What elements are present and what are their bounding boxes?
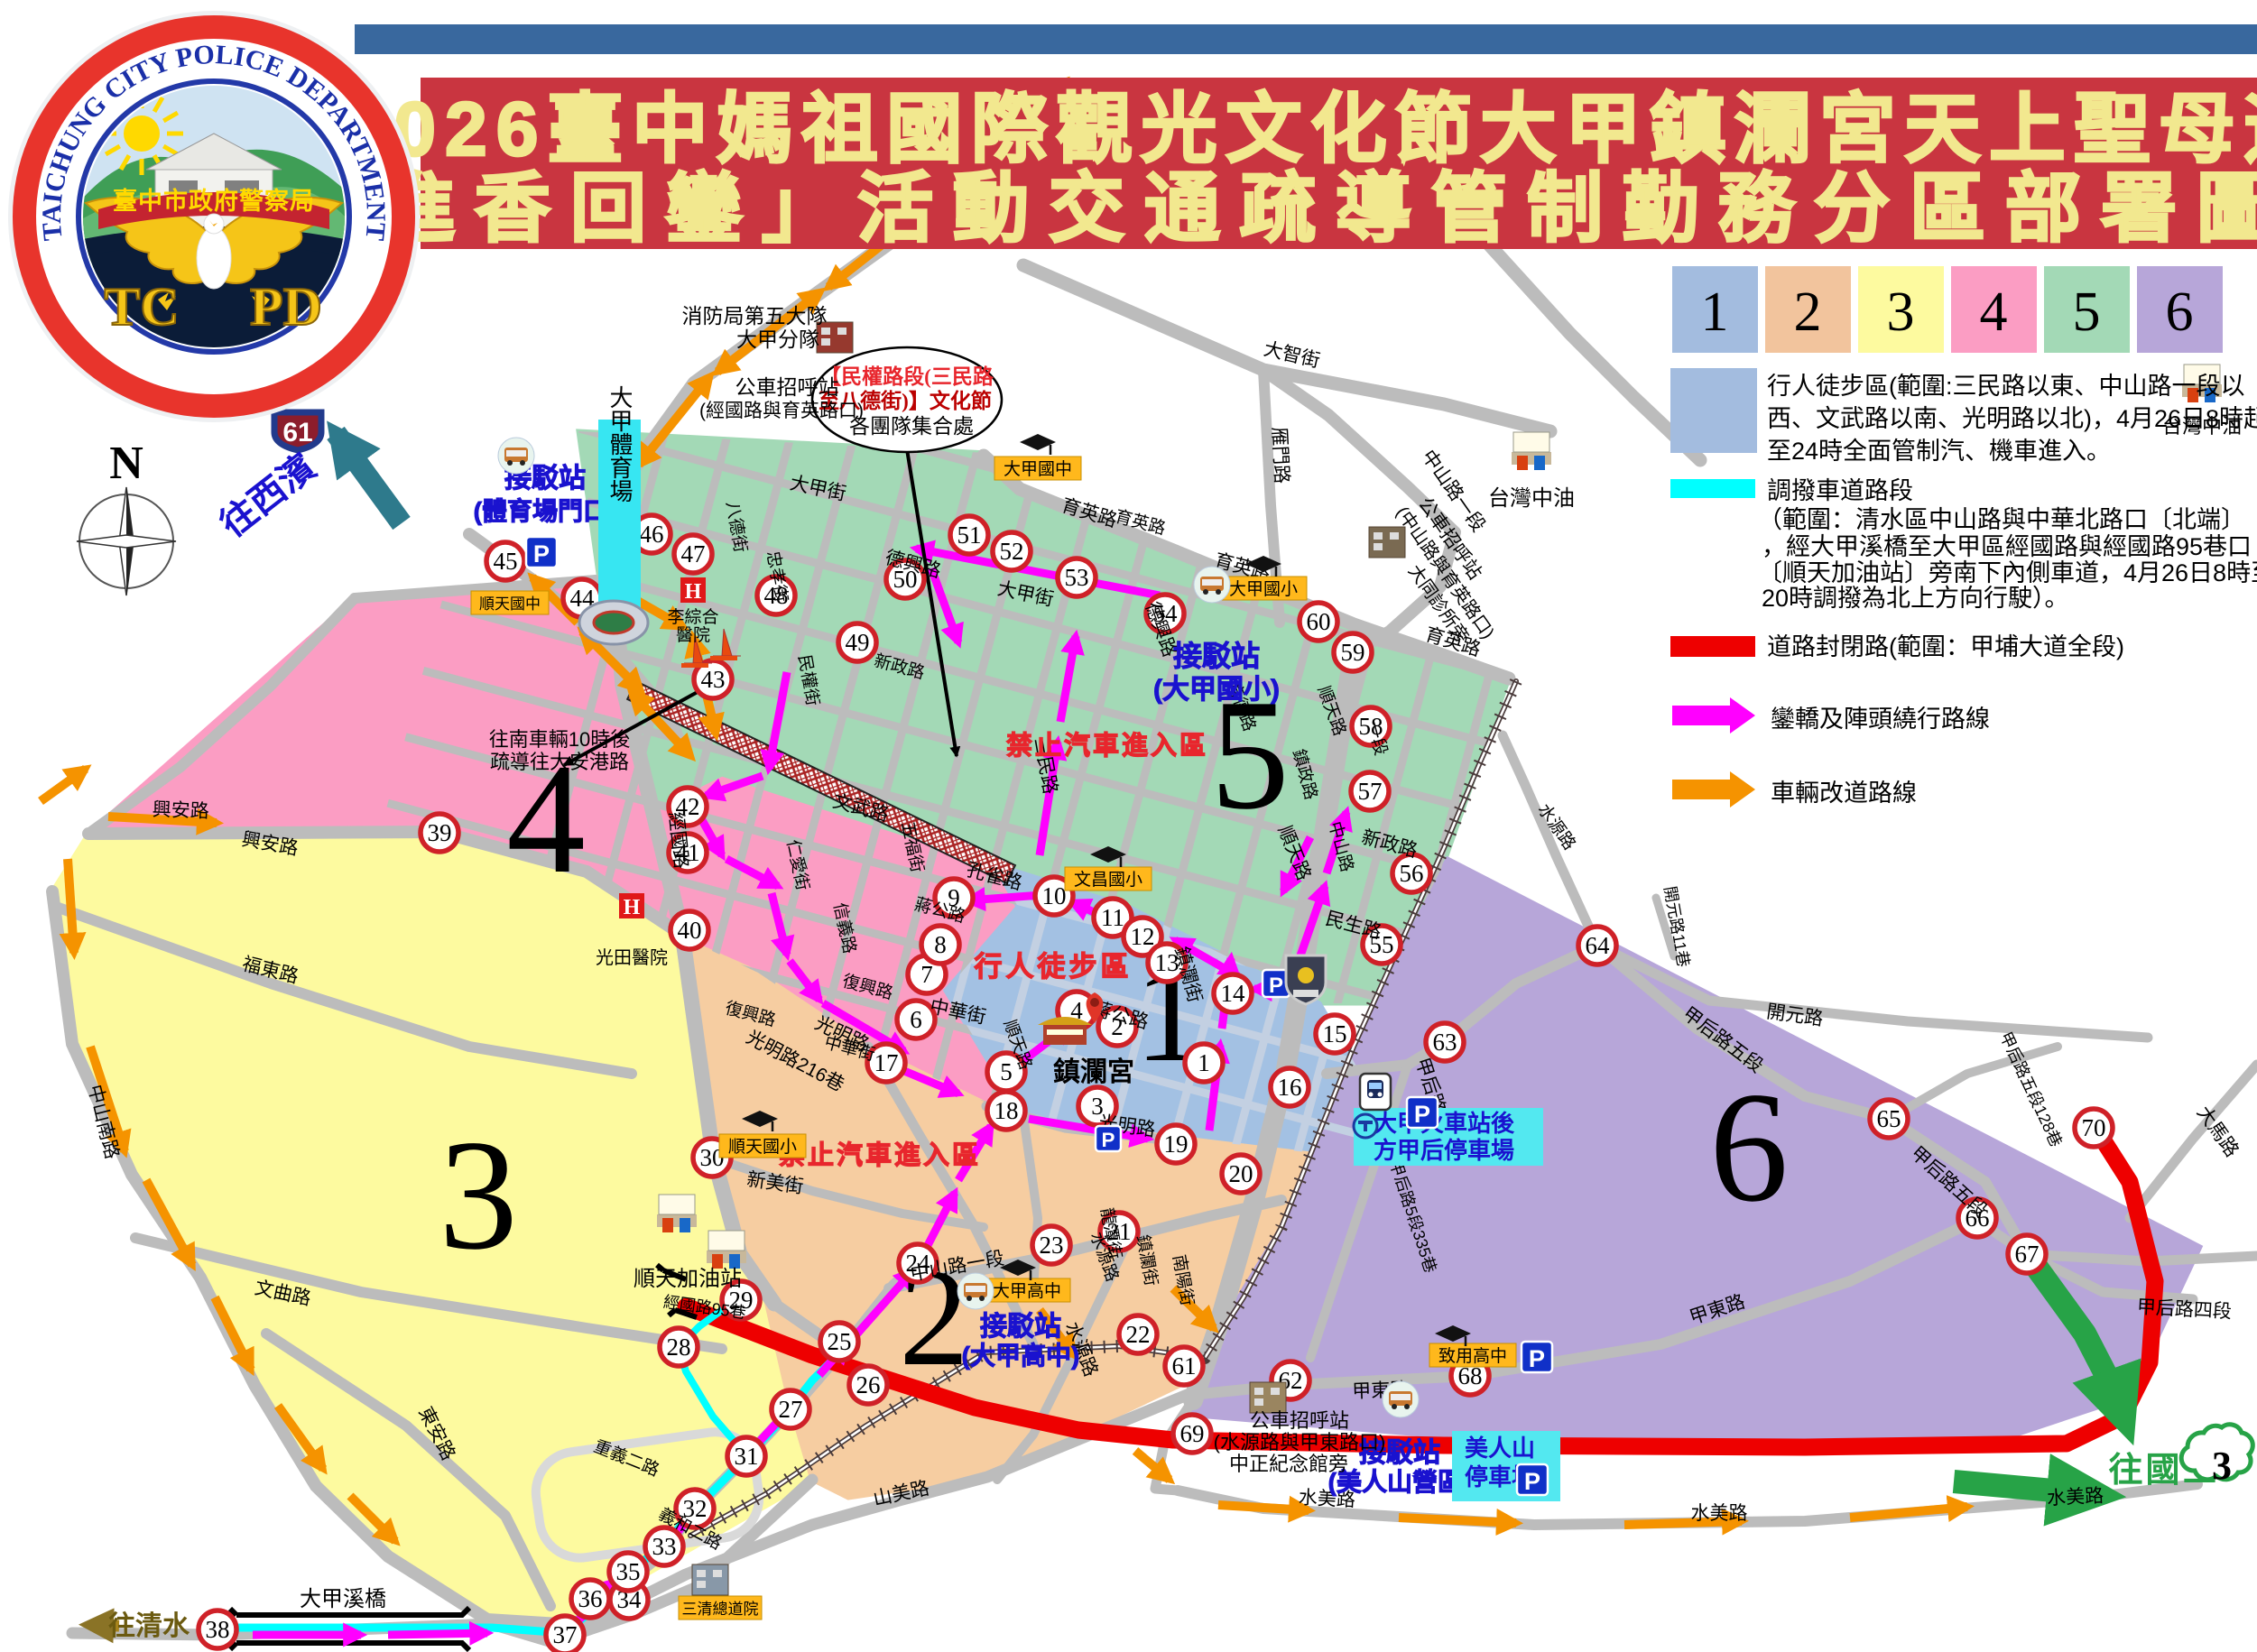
svg-text:方甲后停車場: 方甲后停車場 [1374,1137,1514,1164]
svg-text:45: 45 [494,548,518,575]
svg-text:大甲國小: 大甲國小 [1229,579,1298,599]
svg-text:中正紀念館旁: 中正紀念館旁 [1229,1453,1348,1475]
svg-text:往清水: 往清水 [108,1611,190,1641]
svg-text:行人徒步區: 行人徒步區 [974,951,1133,983]
svg-text:禁止汽車進入區: 禁止汽車進入區 [779,1140,981,1170]
svg-text:(美人山營區): (美人山營區) [1328,1468,1472,1496]
svg-text:(大甲國小): (大甲國小) [1153,675,1280,705]
svg-text:文昌國小: 文昌國小 [1074,870,1142,890]
svg-text:醫院: 醫院 [676,625,710,645]
svg-text:36: 36 [578,1585,603,1612]
svg-text:57: 57 [1358,778,1383,805]
svg-text:車輛改道路線: 車輛改道路線 [1771,780,1917,807]
svg-text:6: 6 [1709,1059,1789,1234]
svg-text:63: 63 [1433,1029,1457,1056]
svg-text:5: 5 [2073,281,2101,343]
svg-text:33: 33 [652,1533,677,1560]
svg-text:H: H [685,580,702,604]
svg-text:56: 56 [1400,860,1424,887]
svg-text:70: 70 [2082,1114,2106,1141]
svg-text:40: 40 [678,917,702,944]
svg-text:35: 35 [616,1558,641,1585]
svg-text:6: 6 [910,1006,922,1033]
svg-text:道路封閉路(範圍：甲埔大道全段): 道路封閉路(範圍：甲埔大道全段) [1767,633,2124,660]
svg-text:P: P [1524,1467,1540,1495]
svg-text:大甲分隊: 大甲分隊 [736,328,819,351]
svg-text:（範圍：清水區中山路與中華北路口〔北端〕: （範圍：清水區中山路與中華北路口〔北端〕 [1758,506,2245,533]
svg-text:2: 2 [1794,281,1822,343]
svg-text:三清總道院: 三清總道院 [682,1601,759,1618]
svg-text:H: H [624,896,641,919]
svg-text:水美路: 水美路 [2047,1485,2104,1509]
svg-text:，經大甲溪橋至大甲區經國路與經國路95巷口: ，經大甲溪橋至大甲區經國路與經國路95巷口 [1762,533,2252,560]
svg-text:〔順天加油站〕旁南下內側車道，4月26日8時至: 〔順天加油站〕旁南下內側車道，4月26日8時至 [1758,559,2257,586]
svg-text:臺中市政府警察局: 臺中市政府警察局 [113,187,315,215]
svg-text:15: 15 [1323,1020,1347,1047]
svg-text:順天國中: 順天國中 [479,595,541,613]
svg-text:公車招呼站: 公車招呼站 [735,375,839,399]
svg-text:調撥車道路段: 調撥車道路段 [1767,477,1913,504]
svg-text:8: 8 [934,931,947,958]
svg-text:49: 49 [846,629,870,656]
svg-text:雁門路: 雁門路 [1268,427,1291,485]
svg-text:P: P [1102,1129,1115,1151]
svg-text:順天加油站: 順天加油站 [634,1267,742,1291]
svg-text:37: 37 [553,1621,578,1648]
svg-text:各團隊集合處: 各團隊集合處 [849,415,974,438]
svg-text:69: 69 [1180,1420,1205,1447]
svg-text:61: 61 [1172,1352,1197,1380]
svg-text:TC: TC [104,277,179,337]
svg-text:P: P [1529,1344,1545,1372]
svg-text:疏導往大安港路: 疏導往大安港路 [490,751,629,773]
svg-text:消防局第五大隊: 消防局第五大隊 [682,304,828,328]
svg-text:52: 52 [1000,538,1024,565]
svg-text:27: 27 [779,1396,803,1423]
svg-text:10: 10 [1042,882,1067,909]
svg-text:往南車輛10時後: 往南車輛10時後 [489,728,630,751]
svg-text:西、文武路以南、光明路以北)，4月26日8時起: 西、文武路以南、光明路以北)，4月26日8時起 [1767,405,2257,432]
svg-text:(大甲高中): (大甲高中) [962,1342,1080,1370]
svg-text:接駁站: 接駁站 [1173,640,1260,672]
svg-text:25: 25 [828,1328,852,1355]
svg-text:PD: PD [250,277,322,337]
svg-text:鑾轎及陣頭繞行路線: 鑾轎及陣頭繞行路線 [1771,706,1990,733]
svg-text:39: 39 [428,819,452,846]
svg-text:(經國路與育英路口): (經國路與育英路口) [699,401,864,421]
svg-text:61: 61 [282,418,312,448]
svg-text:17: 17 [874,1049,899,1076]
svg-text:(水源路與甲東路口): (水源路與甲東路口) [1214,1431,1386,1454]
svg-text:光田醫院: 光田醫院 [596,947,668,968]
svg-text:20時調撥為北上方向行駛）。: 20時調撥為北上方向行駛）。 [1762,585,2069,612]
svg-text:20: 20 [1229,1160,1253,1187]
svg-text:53: 53 [1065,564,1089,591]
svg-text:P: P [533,540,550,568]
svg-text:N: N [109,438,143,489]
svg-text:7: 7 [920,961,933,988]
svg-text:李綜合: 李綜合 [667,607,718,627]
svg-text:14: 14 [1221,980,1246,1007]
svg-text:38: 38 [206,1616,230,1643]
svg-text:64: 64 [1586,932,1611,959]
svg-text:大甲溪橋: 大甲溪橋 [300,1587,386,1611]
svg-text:26: 26 [856,1371,881,1398]
svg-text:67: 67 [2015,1241,2040,1268]
svg-text:43: 43 [701,666,726,693]
svg-text:興安路: 興安路 [152,799,209,822]
svg-text:3: 3 [439,1107,518,1282]
svg-text:18: 18 [994,1097,1019,1124]
svg-text:致用高中: 致用高中 [1438,1346,1507,1366]
svg-text:28: 28 [667,1334,691,1361]
svg-text:接駁站: 接駁站 [980,1312,1061,1342]
svg-text:3: 3 [2212,1444,2232,1488]
svg-text:12: 12 [1131,923,1155,950]
svg-text:P: P [1414,1100,1430,1128]
svg-text:23: 23 [1040,1232,1064,1259]
svg-text:進香回鑾」活動交通疏導管制勤務分區部署圖: 進香回鑾」活動交通疏導管制勤務分區部署圖 [379,166,2257,251]
svg-text:大甲體育場: 大甲體育場 [606,385,634,503]
svg-text:【民權路段(三民路: 【民權路段(三民路 [820,365,994,388]
svg-text:4: 4 [1980,281,2008,343]
svg-text:大甲高中: 大甲高中 [993,1281,1061,1301]
svg-text:大甲火車站後: 大甲火車站後 [1374,1110,1515,1137]
svg-text:行人徒步區(範圍:三民路以東、中山路一段以: 行人徒步區(範圍:三民路以東、中山路一段以 [1767,373,2245,400]
svg-text:公車招呼站: 公車招呼站 [1250,1409,1349,1432]
svg-text:60: 60 [1307,608,1331,635]
svg-text:31: 31 [735,1443,759,1470]
svg-text:46: 46 [640,521,664,548]
svg-text:(體育場門口): (體育場門口) [474,496,617,525]
svg-text:台灣中油: 台灣中油 [1488,486,1575,511]
svg-text:P: P [1269,974,1283,998]
svg-text:大甲國中: 大甲國中 [1004,459,1072,479]
svg-text:順天國小: 順天國小 [728,1137,797,1157]
svg-text:美人山: 美人山 [1465,1435,1535,1462]
svg-text:51: 51 [957,521,982,549]
svg-text:16: 16 [1278,1074,1302,1101]
svg-text:5: 5 [1000,1058,1013,1085]
svg-text:鎮瀾宮: 鎮瀾宮 [1053,1057,1134,1087]
svg-text:11: 11 [1101,904,1124,931]
svg-text:6: 6 [2166,281,2194,343]
svg-text:1: 1 [1701,281,1729,343]
svg-text:至24時全面管制汽、機車進入。: 至24時全面管制汽、機車進入。 [1767,438,2111,465]
svg-text:47: 47 [681,540,706,568]
svg-text:3: 3 [1887,281,1915,343]
svg-text:19: 19 [1164,1131,1189,1158]
svg-text:22: 22 [1126,1321,1151,1348]
svg-text:65: 65 [1877,1105,1901,1132]
svg-text:1: 1 [1198,1049,1210,1076]
svg-text:禁止汽車進入區: 禁止汽車進入區 [1006,731,1208,761]
svg-text:「2026臺中媽祖國際觀光文化節大甲鎮瀾宮天上聖母遶境: 「2026臺中媽祖國際觀光文化節大甲鎮瀾宮天上聖母遶境 [258,87,2257,171]
svg-text:59: 59 [1341,639,1365,666]
svg-text:水美路: 水美路 [1691,1503,1748,1524]
